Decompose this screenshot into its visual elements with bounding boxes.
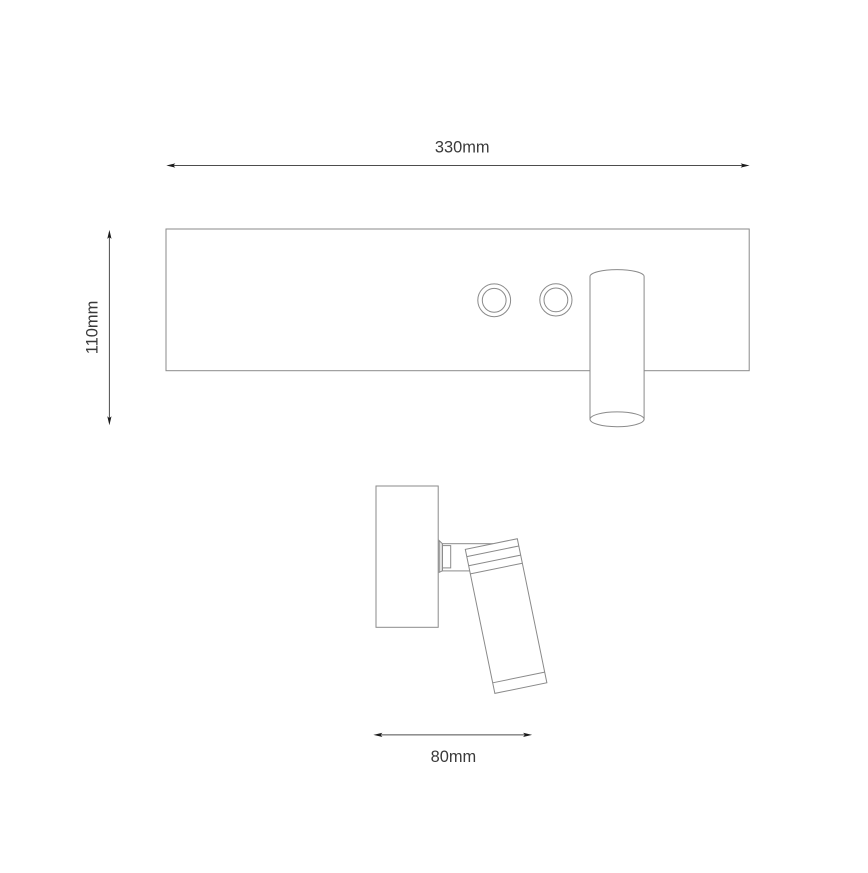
svg-text:330mm: 330mm bbox=[435, 138, 490, 156]
svg-text:110mm: 110mm bbox=[84, 301, 102, 354]
svg-text:80mm: 80mm bbox=[431, 748, 477, 766]
